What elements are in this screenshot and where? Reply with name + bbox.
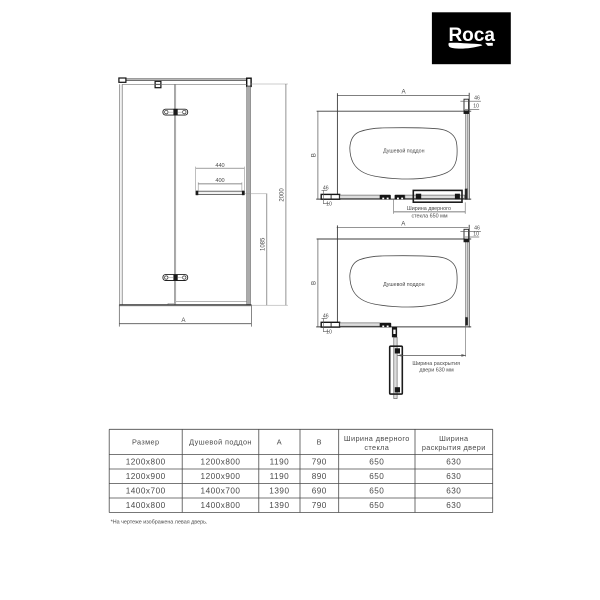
svg-text:A: A bbox=[277, 437, 282, 446]
svg-text:Душевой поддон: Душевой поддон bbox=[383, 281, 425, 288]
svg-text:Ширина дверного: Ширина дверного bbox=[407, 206, 451, 212]
svg-text:630: 630 bbox=[446, 487, 461, 496]
svg-text:стекла 650 мм: стекла 650 мм bbox=[411, 214, 447, 220]
svg-text:B: B bbox=[310, 281, 317, 285]
svg-text:2000: 2000 bbox=[279, 188, 285, 202]
svg-text:630: 630 bbox=[446, 458, 461, 467]
svg-text:1390: 1390 bbox=[269, 487, 289, 496]
svg-text:46: 46 bbox=[323, 185, 329, 191]
svg-text:A: A bbox=[402, 89, 407, 96]
svg-text:790: 790 bbox=[312, 501, 327, 510]
svg-text:1200x800: 1200x800 bbox=[201, 458, 241, 467]
svg-text:Душевой поддон: Душевой поддон bbox=[189, 437, 252, 446]
svg-text:Ширина раскрытия: Ширина раскрытия bbox=[412, 361, 460, 367]
svg-text:690: 690 bbox=[312, 487, 327, 496]
svg-text:1400x800: 1400x800 bbox=[126, 501, 166, 510]
svg-text:стекла: стекла bbox=[364, 443, 389, 452]
svg-text:10: 10 bbox=[326, 330, 332, 336]
svg-text:A: A bbox=[181, 317, 186, 324]
svg-text:B: B bbox=[310, 153, 317, 157]
svg-text:раскрытия двери: раскрытия двери bbox=[422, 443, 486, 452]
svg-text:630: 630 bbox=[446, 472, 461, 481]
svg-text:1085: 1085 bbox=[260, 237, 266, 251]
svg-text:1200x800: 1200x800 bbox=[126, 458, 166, 467]
svg-text:1200x900: 1200x900 bbox=[201, 472, 241, 481]
svg-text:10: 10 bbox=[326, 202, 332, 208]
svg-text:650: 650 bbox=[369, 472, 384, 481]
svg-text:790: 790 bbox=[312, 458, 327, 467]
svg-text:1390: 1390 bbox=[269, 501, 289, 510]
svg-text:Ширина дверного: Ширина дверного bbox=[344, 434, 410, 443]
svg-text:двери 630 мм: двери 630 мм bbox=[419, 368, 454, 374]
svg-text:1400x700: 1400x700 bbox=[126, 487, 166, 496]
svg-text:650: 650 bbox=[369, 458, 384, 467]
svg-text:10: 10 bbox=[473, 231, 479, 237]
svg-text:650: 650 bbox=[369, 501, 384, 510]
svg-text:650: 650 bbox=[369, 487, 384, 496]
svg-text:Ширина: Ширина bbox=[439, 434, 469, 443]
svg-text:A: A bbox=[401, 221, 406, 228]
svg-text:1190: 1190 bbox=[270, 472, 290, 481]
svg-text:440: 440 bbox=[215, 163, 224, 169]
svg-text:1400x700: 1400x700 bbox=[201, 487, 241, 496]
svg-text:*На чертеже изображена левая д: *На чертеже изображена левая дверь. bbox=[111, 520, 208, 526]
svg-text:46: 46 bbox=[474, 96, 480, 102]
svg-text:Душевой поддон: Душевой поддон bbox=[383, 147, 425, 154]
svg-text:46: 46 bbox=[323, 313, 329, 319]
svg-text:400: 400 bbox=[215, 178, 224, 184]
svg-text:10: 10 bbox=[473, 104, 479, 110]
svg-text:B: B bbox=[317, 437, 322, 446]
svg-text:Размер: Размер bbox=[132, 437, 159, 446]
svg-text:630: 630 bbox=[446, 501, 461, 510]
svg-text:1190: 1190 bbox=[270, 458, 290, 467]
svg-text:1400x800: 1400x800 bbox=[201, 501, 241, 510]
svg-text:1200x900: 1200x900 bbox=[126, 472, 166, 481]
svg-text:890: 890 bbox=[312, 472, 327, 481]
